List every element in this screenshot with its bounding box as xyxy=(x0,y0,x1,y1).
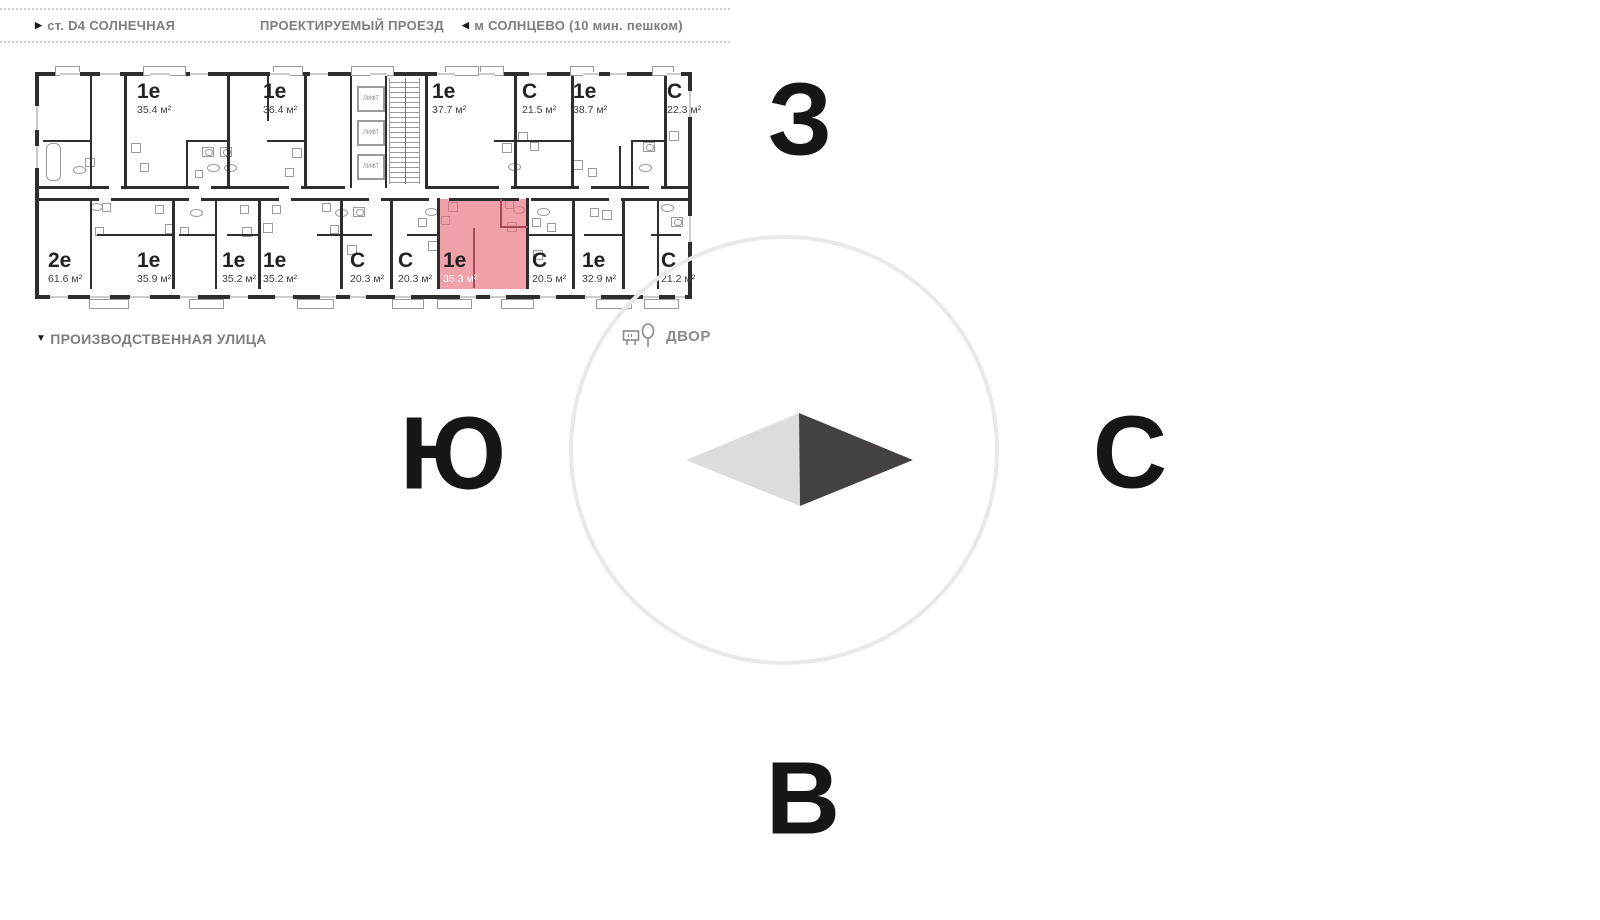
staircase xyxy=(389,78,420,184)
fixture-sq-icon xyxy=(140,163,149,172)
window xyxy=(150,72,170,76)
window xyxy=(50,295,68,299)
window xyxy=(370,72,387,76)
wall xyxy=(201,198,279,201)
street-label-solntsevo: ◀ м СОЛНЦЕВО (10 мин. пешком) xyxy=(462,18,683,33)
wall xyxy=(385,76,387,188)
unit-label[interactable]: 1е 35.2 м² xyxy=(263,250,297,285)
window xyxy=(460,295,476,299)
window xyxy=(490,295,506,299)
balcony-ledge xyxy=(189,299,224,309)
sink-basin xyxy=(646,144,654,150)
fixture-sq-icon xyxy=(195,170,203,178)
wall xyxy=(291,198,369,201)
wall xyxy=(631,140,664,142)
window xyxy=(320,295,336,299)
fixture-oval-icon xyxy=(224,164,237,172)
unit-label[interactable]: 1е 37.7 м² xyxy=(432,81,466,116)
sink-basin xyxy=(205,149,213,155)
compass-letter-west: З xyxy=(768,67,833,170)
wall xyxy=(407,234,437,236)
courtyard-label-text: ДВОР xyxy=(666,328,711,345)
wall xyxy=(651,234,681,236)
street-label-proizvodstvennaya: ▼ ПРОИЗВОДСТВЕННАЯ УЛИЦА xyxy=(36,331,267,347)
window xyxy=(275,295,293,299)
window xyxy=(437,72,455,76)
fixture-sink-icon xyxy=(353,207,365,217)
wall xyxy=(39,198,99,201)
fixture-sq-icon xyxy=(418,218,427,227)
wall xyxy=(584,234,622,236)
wall xyxy=(622,198,625,289)
fixture-oval-icon xyxy=(207,164,220,172)
window xyxy=(230,295,248,299)
wall xyxy=(90,76,92,188)
right-triangle-icon: ▶ xyxy=(35,21,42,30)
wall xyxy=(529,234,572,236)
window xyxy=(479,72,495,76)
window xyxy=(585,295,601,299)
wall xyxy=(619,146,621,188)
window xyxy=(35,106,39,130)
fixture-sq-icon xyxy=(448,202,458,212)
highlighted-unit-wall xyxy=(500,199,502,228)
street-label-text: м СОЛНЦЕВО (10 мин. пешком) xyxy=(474,18,683,33)
floor-plan: 1е 35.4 м² 1е 36.4 м² 1е 37.7 м² С 21.5 … xyxy=(35,66,725,316)
window xyxy=(180,295,198,299)
wall xyxy=(90,198,92,289)
fixture-xsq-icon xyxy=(263,223,273,233)
compass-needle-icon xyxy=(672,410,914,510)
unit-label[interactable]: 1е 35.4 м² xyxy=(137,81,171,116)
wall xyxy=(425,186,499,189)
unit-label[interactable]: 2е 61.6 м² xyxy=(48,250,82,285)
window xyxy=(60,72,80,76)
wall xyxy=(227,234,258,236)
window xyxy=(100,72,120,76)
wall xyxy=(215,198,217,289)
highlighted-unit-wall xyxy=(500,226,528,228)
fixture-sq-icon xyxy=(102,203,111,212)
fixture-oval-icon xyxy=(639,164,652,172)
window xyxy=(90,295,110,299)
compass-letter-north: С xyxy=(1093,400,1167,503)
street-label-text: ст. D4 СОЛНЕЧНАЯ xyxy=(47,18,175,33)
fixture-sq-icon xyxy=(588,168,597,177)
fixture-xsq-icon xyxy=(602,210,612,220)
window xyxy=(529,72,547,76)
wall xyxy=(121,186,199,189)
unit-label[interactable]: 1е 35.2 м² xyxy=(222,250,256,285)
wall xyxy=(494,140,571,142)
wall xyxy=(350,76,352,188)
fixture-sq-icon xyxy=(272,205,281,214)
wall xyxy=(124,76,127,188)
down-triangle-icon: ▼ xyxy=(36,334,46,344)
wall xyxy=(661,186,688,189)
fixture-sink-icon xyxy=(220,147,232,157)
wall xyxy=(437,198,440,289)
wall xyxy=(227,76,230,188)
fixture-sq-icon xyxy=(590,208,599,217)
fixture-sq-icon xyxy=(530,142,539,151)
unit-label[interactable]: С 20.5 м² xyxy=(532,250,566,285)
street-label-text: ПРОЕКТИРУЕМЫЙ ПРОЕЗД xyxy=(260,18,444,33)
street-label-solnechnaya: ▶ ст. D4 СОЛНЕЧНАЯ xyxy=(35,18,175,33)
wall xyxy=(301,186,345,189)
balcony-ledge xyxy=(437,299,472,309)
fixture-oval-icon xyxy=(73,166,86,174)
window xyxy=(350,295,366,299)
window xyxy=(540,295,556,299)
street-label-proezd: ПРОЕКТИРУЕМЫЙ ПРОЕЗД xyxy=(260,18,444,33)
unit-label[interactable]: 1е 36.4 м² xyxy=(263,81,297,116)
header-dotted-line-bottom xyxy=(0,41,730,43)
unit-label[interactable]: 1е 38.7 м² xyxy=(573,81,607,116)
wall xyxy=(572,198,575,289)
fixture-oval-icon xyxy=(537,208,550,216)
wall xyxy=(43,140,90,142)
window xyxy=(35,146,39,168)
balcony-ledge xyxy=(501,299,534,309)
unit-label[interactable]: С 22.3 м² xyxy=(667,81,701,116)
wall xyxy=(340,198,343,289)
unit-label[interactable]: С 21.5 м² xyxy=(522,81,556,116)
fixture-sq-icon xyxy=(285,168,294,177)
fixture-sink-icon xyxy=(671,217,683,227)
window xyxy=(583,72,599,76)
wall xyxy=(526,198,529,289)
compass-needle-north-half xyxy=(799,413,913,506)
window xyxy=(310,72,328,76)
fixture-xsq-icon xyxy=(573,160,583,170)
wall xyxy=(267,140,304,142)
compass-letter-east: В xyxy=(766,746,840,849)
wall xyxy=(304,76,307,188)
fixture-sink-icon xyxy=(202,147,214,157)
wall xyxy=(591,186,649,189)
bench-and-tree-icon xyxy=(622,323,658,349)
wall xyxy=(317,234,372,236)
fixture-oval-icon xyxy=(513,206,525,214)
elevator-box: ЛИФТ xyxy=(357,120,385,146)
wall xyxy=(449,198,519,201)
wall xyxy=(39,186,109,189)
fixture-sq-icon xyxy=(532,218,541,227)
wall xyxy=(211,186,289,189)
wall xyxy=(97,234,172,236)
window xyxy=(667,72,681,76)
sink-basin xyxy=(356,209,364,215)
floor-plan-outline: 1е 35.4 м² 1е 36.4 м² 1е 37.7 м² С 21.5 … xyxy=(35,72,692,299)
fixture-sq-icon xyxy=(155,205,164,214)
fixture-sq-icon xyxy=(330,225,339,234)
fixture-sq-icon xyxy=(547,223,556,232)
unit-label[interactable]: С 20.3 м² xyxy=(398,250,432,285)
unit-label-highlighted[interactable]: 1е 35.3 м² xyxy=(443,250,477,285)
window xyxy=(130,295,150,299)
left-triangle-icon: ◀ xyxy=(462,21,469,30)
sink-basin xyxy=(674,219,682,225)
unit-label[interactable]: 1е 32.9 м² xyxy=(582,250,616,285)
unit-label[interactable]: С 20.3 м² xyxy=(350,250,384,285)
fixture-sink-icon xyxy=(643,142,655,152)
window xyxy=(688,216,692,242)
fixture-sq-icon xyxy=(502,143,512,153)
window xyxy=(270,72,290,76)
header-dotted-line-top xyxy=(0,8,730,10)
wall xyxy=(425,76,428,188)
wall xyxy=(186,140,227,142)
fixture-oval-icon xyxy=(661,204,674,212)
wall xyxy=(511,186,579,189)
fixture-xsq-icon xyxy=(441,216,450,225)
unit-label[interactable]: 1е 35.9 м² xyxy=(137,250,171,285)
wall xyxy=(381,198,429,201)
fixture-tub-icon xyxy=(46,143,61,181)
wall xyxy=(179,234,215,236)
window xyxy=(190,72,208,76)
wall xyxy=(621,198,688,201)
wall xyxy=(172,198,175,289)
wall xyxy=(390,198,393,289)
elevator-box: ЛИФТ xyxy=(357,154,385,180)
wall xyxy=(631,140,633,188)
compass-letter-south: Ю xyxy=(400,401,506,504)
fixture-sq-icon xyxy=(240,205,249,214)
balcony-ledge xyxy=(89,299,129,309)
fixture-xsq-icon xyxy=(292,148,302,158)
fixture-oval-icon xyxy=(190,209,203,217)
balcony-ledge xyxy=(297,299,334,309)
wall xyxy=(186,140,188,186)
fixture-sq-icon xyxy=(322,203,331,212)
fixture-xsq-icon xyxy=(669,131,679,141)
wall xyxy=(514,76,517,188)
compass-needle-south-half xyxy=(686,413,800,506)
wall xyxy=(111,198,189,201)
courtyard-label: ДВОР xyxy=(622,323,711,349)
balcony-ledge xyxy=(392,299,424,309)
wall xyxy=(531,198,609,201)
elevator-box: ЛИФТ xyxy=(357,86,385,112)
window xyxy=(610,72,627,76)
street-label-text: ПРОИЗВОДСТВЕННАЯ УЛИЦА xyxy=(50,331,266,347)
fixture-xsq-icon xyxy=(131,143,141,153)
window xyxy=(395,295,411,299)
wall xyxy=(258,198,261,289)
